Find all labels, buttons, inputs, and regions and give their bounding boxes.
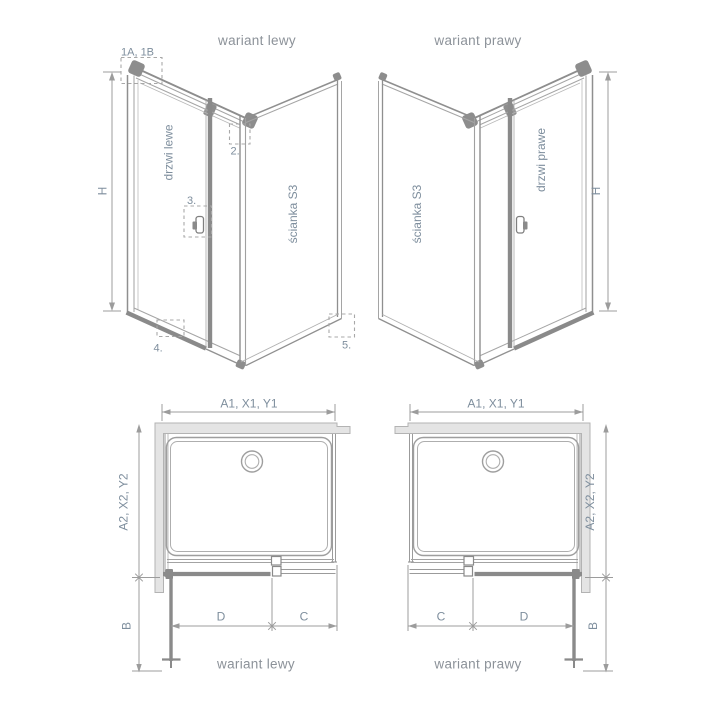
front-top-edge (136, 78, 240, 125)
technical-diagram-page: wariant lewy 1A, 1B 2. 3. 4. 5. drzwi le… (0, 0, 720, 720)
front-bottom-edge (206, 349, 241, 365)
door-width-label-left-plan: D (217, 610, 226, 624)
door-open-swing-right (565, 576, 584, 668)
door-handle (193, 217, 204, 234)
callout-label-4: 4. (154, 343, 163, 355)
wall-label-left: ścianka S3 (286, 184, 300, 243)
glass-top-edge (140, 83, 240, 128)
right-plan-mirrored-geometry (395, 404, 613, 673)
corner-post (240, 116, 246, 366)
connector-block-upper (272, 557, 282, 566)
glass-bottom-edge (134, 308, 240, 356)
width-label-left-plan: A1, X1, Y1 (220, 397, 277, 411)
left-variant-plan-view: A1, X1, Y1 A2, X2, Y2 B D C wariant lewy (117, 397, 351, 673)
fixed-width-label-left-plan: C (300, 610, 309, 624)
door-label-right: drzwi prawe (534, 128, 548, 192)
callout-label-5: 5. (342, 340, 351, 352)
left-plan-caption: wariant lewy (216, 657, 295, 672)
top-rail (127, 59, 259, 129)
door-width-label-right-plan: D (520, 610, 529, 624)
right-variant-plan-view: A1, X1, Y1 A2, X2, Y2 B C D wariant praw… (395, 397, 613, 673)
width-label-right-plan: A1, X1, Y1 (467, 397, 524, 411)
front-assembly-right (410, 557, 583, 580)
height-label-left: H (96, 187, 110, 196)
callout-label-2: 2. (231, 146, 240, 158)
drain-inner (245, 455, 259, 469)
depth-label-right-plan: A2, X2, Y2 (583, 473, 597, 530)
front-assembly (163, 557, 336, 580)
height-label-right: H (589, 187, 603, 196)
door-label-left: drzwi lewe (162, 124, 176, 180)
door-swing-label-right-plan: B (586, 622, 600, 630)
connector-block-lower (273, 567, 282, 577)
corner-post-right (475, 116, 481, 366)
shower-tray-inner (171, 442, 328, 552)
building-wall (155, 423, 350, 593)
diagram-canvas: wariant lewy 1A, 1B 2. 3. 4. 5. drzwi le… (0, 0, 720, 720)
wall-label-right: ścianka S3 (410, 184, 424, 243)
door-handle-right (517, 217, 528, 234)
wall-profile (128, 75, 139, 312)
left-variant-3d-view: wariant lewy 1A, 1B 2. 3. 4. 5. drzwi le… (96, 33, 355, 370)
drain-right (483, 451, 504, 472)
top-rail-right (461, 59, 593, 129)
right-variant-3d-view: wariant prawy ścianka S3 drzwi prawe H (378, 33, 617, 370)
door-open-swing (162, 576, 181, 668)
building-wall-right (395, 423, 590, 593)
callout-label-3: 3. (187, 195, 196, 207)
left-3d-title: wariant lewy (217, 33, 296, 48)
drain (242, 451, 263, 472)
door-swing-label-left-plan: B (120, 622, 134, 630)
rail-wall-bracket (127, 59, 145, 77)
depth-label-left-plan: A2, X2, Y2 (117, 473, 131, 530)
door-bottom-profile (127, 313, 207, 349)
fixed-width-label-right-plan: C (437, 610, 446, 624)
right-3d-title: wariant prawy (433, 33, 521, 48)
callout-label-1a-1b: 1A, 1B (121, 47, 154, 59)
right-plan-caption: wariant prawy (433, 657, 521, 672)
